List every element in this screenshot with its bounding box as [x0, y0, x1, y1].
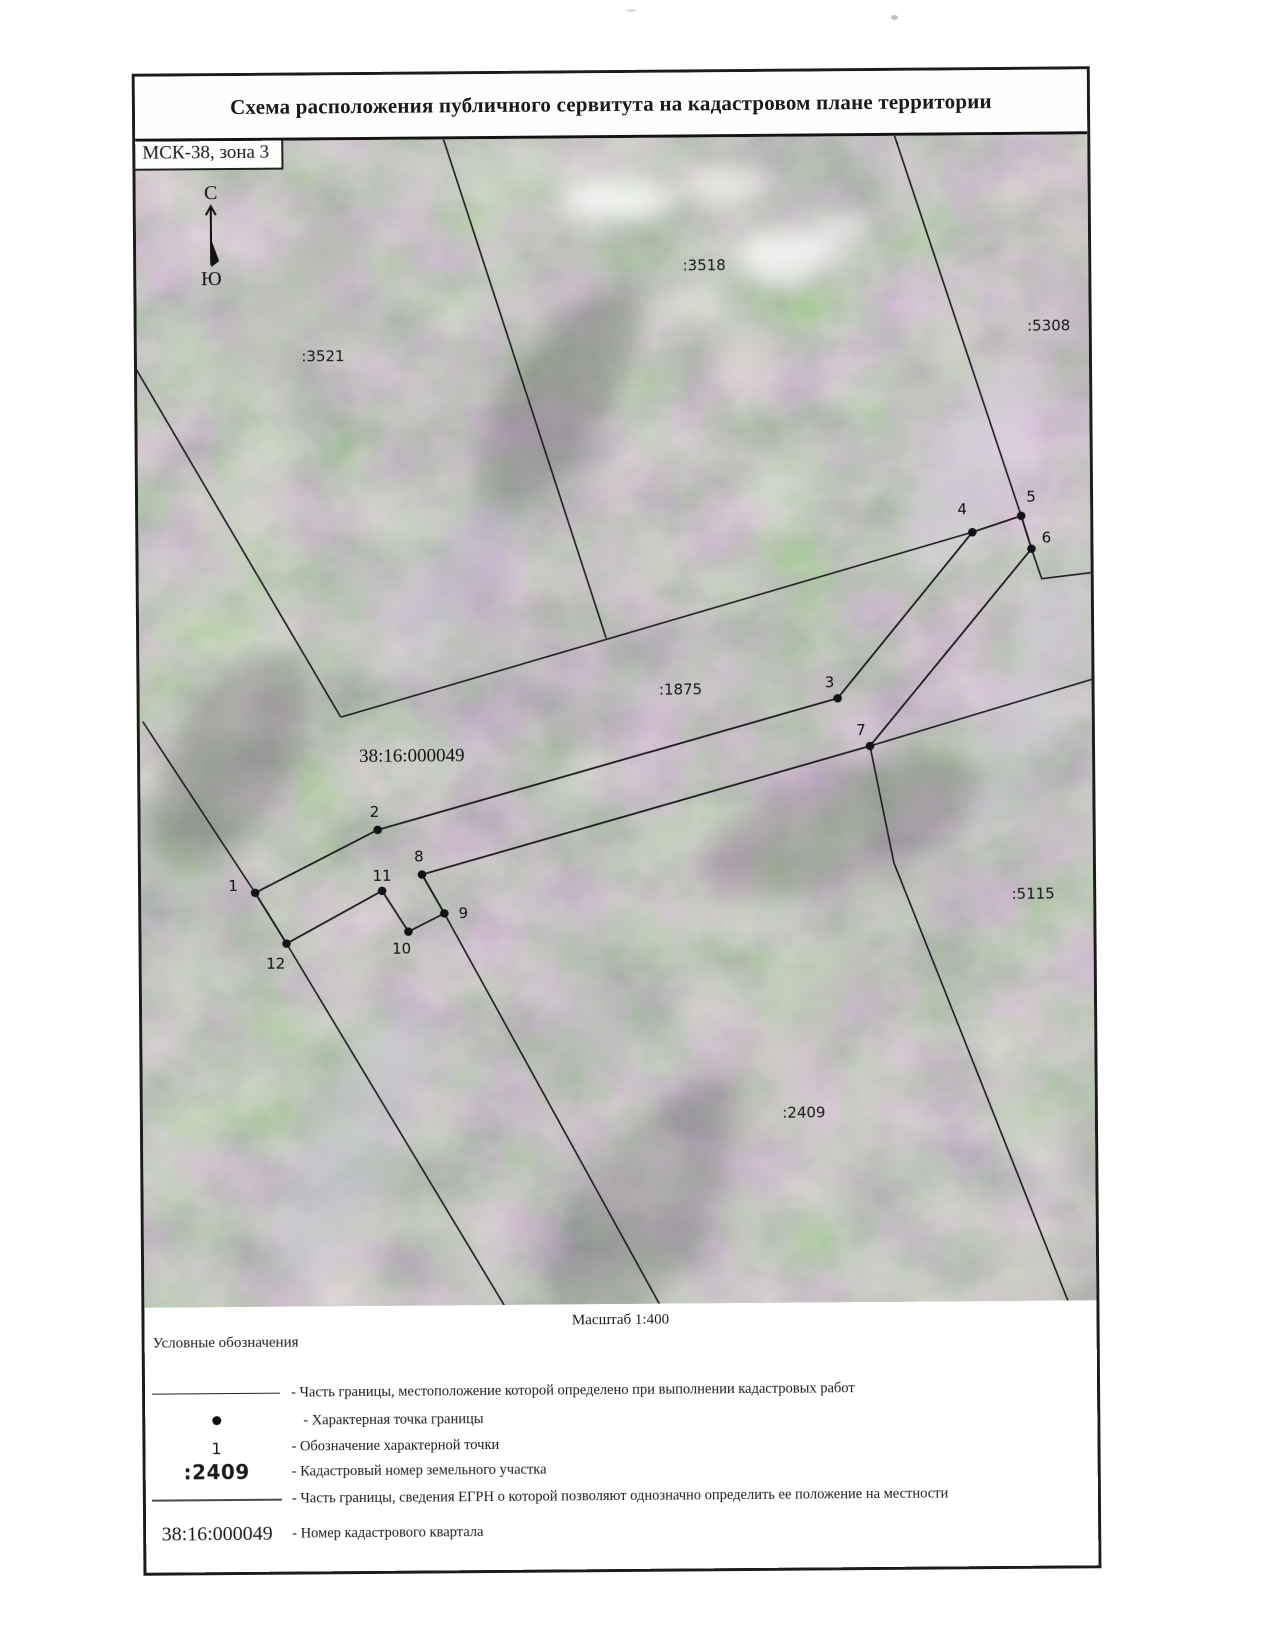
legend-text: - Номер кадастрового квартала	[292, 1524, 483, 1542]
point-label: 4	[957, 500, 967, 518]
legend-text: - Часть границы, сведения ЕГРН о которой…	[292, 1484, 1090, 1507]
boundary-point	[1027, 544, 1036, 553]
north-arrow-icon	[200, 203, 223, 269]
quarter-number-symbol: 38:16:000049	[151, 1523, 283, 1547]
boundary-point	[866, 742, 875, 751]
boundary-point	[440, 909, 449, 918]
north-arrow: С Ю	[188, 183, 235, 289]
point-label: 5	[1026, 488, 1036, 506]
boundary-point	[968, 528, 977, 537]
legend-row-point: - Характерная точка границы	[145, 1406, 1097, 1413]
map-scale: Масштаб 1:400	[144, 1308, 1096, 1332]
cadastral-map: 123456789101112:3521:3518:5308:1875:5115…	[135, 134, 1096, 1307]
parcel-label: :1875	[659, 680, 702, 698]
legend-text: - Часть границы, местоположение которой …	[291, 1378, 1089, 1401]
legend-text: - Кадастровый номер земельного участка	[292, 1462, 547, 1480]
point-label: 6	[1042, 529, 1052, 547]
parcel-label: :5115	[1011, 885, 1054, 903]
point-label: 10	[392, 940, 411, 958]
point-label: 2	[370, 803, 380, 821]
north-label: С	[204, 183, 218, 203]
crs-label: МСК-38, зона 3	[142, 142, 269, 164]
point-label: 8	[414, 848, 424, 866]
parcel-label: :5308	[1027, 316, 1070, 334]
south-label: Ю	[201, 269, 222, 289]
parcel-label: :3521	[301, 347, 344, 365]
boundary-point	[418, 870, 427, 879]
parcel-label: :3518	[683, 256, 726, 274]
scan-speck	[626, 9, 636, 12]
page-title: Схема расположения публичного сервитута …	[230, 89, 992, 120]
boundary-point	[833, 694, 842, 703]
legend-row-point-number: 1 - Обозначение характерной точки	[145, 1432, 1097, 1439]
document-frame: Схема расположения публичного сервитута …	[132, 66, 1102, 1575]
quarter-label: 38:16:000049	[359, 745, 465, 767]
legend-row-measured-line: - Часть границы, местоположение которой …	[145, 1378, 1097, 1385]
parcel-number-symbol: :2409	[151, 1460, 283, 1485]
legend-text: - Характерная точка границы	[303, 1406, 1089, 1429]
point-label: 9	[458, 904, 468, 922]
boundary-point-symbol	[212, 1416, 221, 1425]
legend-text: - Обозначение характерной точки	[291, 1432, 1089, 1455]
legend: Масштаб 1:400 Условные обозначения - Час…	[144, 1300, 1098, 1572]
point-label: 11	[372, 867, 391, 885]
legend-row-quarter-number: 38:16:000049 - Номер кадастрового кварта…	[146, 1516, 1098, 1540]
boundary-point	[404, 927, 413, 936]
legend-row-egrn-line: - Часть границы, сведения ЕГРН о которой…	[146, 1484, 1098, 1491]
egrn-line-symbol	[152, 1498, 282, 1501]
map-canvas: 123456789101112:3521:3518:5308:1875:5115…	[135, 134, 1096, 1307]
point-label: 12	[266, 955, 285, 973]
point-label: 3	[825, 673, 835, 691]
scan-speck	[891, 15, 898, 20]
point-number-symbol: 1	[150, 1439, 282, 1459]
point-label: 1	[228, 877, 238, 895]
boundary-point	[378, 887, 387, 896]
scanned-document-page: Схема расположения публичного сервитута …	[0, 0, 1275, 1650]
boundary-point	[251, 889, 260, 898]
measured-line-symbol	[152, 1393, 280, 1395]
legend-row-parcel-number: :2409 - Кадастровый номер земельного уча…	[146, 1453, 1098, 1477]
boundary-point	[373, 826, 382, 835]
parcel-label: :2409	[782, 1103, 825, 1121]
crs-label-box: МСК-38, зона 3	[135, 138, 283, 171]
point-label: 7	[856, 721, 866, 739]
boundary-point	[282, 939, 291, 948]
legend-heading: Условные обозначения	[153, 1335, 299, 1353]
title-bar: Схема расположения публичного сервитута …	[135, 69, 1087, 141]
boundary-point	[1017, 511, 1026, 520]
